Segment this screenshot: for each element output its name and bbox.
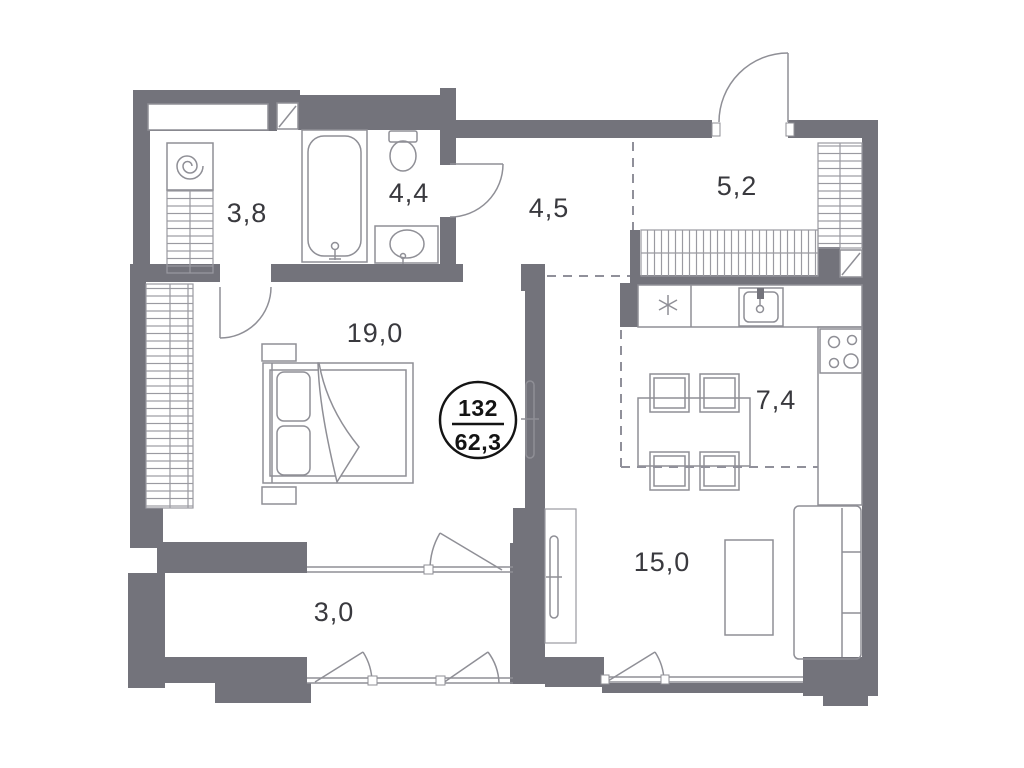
nightstand-symbol [262,344,296,361]
floor-plan-canvas: 3,8 4,4 4,5 5,2 19,0 7,4 15,0 3,0 132 62… [0,0,1024,768]
sliding-door-panel [545,509,576,643]
apartment-badge: 132 62,3 [440,382,516,458]
door-jamb [786,123,794,136]
radiator-symbol [146,284,193,508]
wall-niche-cabinet [148,104,268,130]
washing-machine-symbol [167,143,213,190]
room-label-living-room: 15,0 [634,547,691,577]
wardrobe-symbol [641,230,818,276]
entrance-door-swing [719,53,788,122]
door-jamb [712,123,720,136]
apartment-total-area: 62,3 [455,429,502,455]
stove-symbol [820,329,862,373]
kitchen-counter [638,285,862,505]
room-label-hallway: 4,5 [529,193,570,223]
bathtub-symbol [302,130,367,262]
dining-table-symbol [638,374,750,490]
bathroom-door-swing [450,164,503,217]
toilet-symbol [389,131,417,171]
room-label-bedroom: 19,0 [347,318,404,348]
wardrobe-room-door-swing [220,287,271,338]
radiator-symbol [818,143,862,248]
balcony-door-swing [430,533,502,570]
vent-shaft-icon [840,250,862,277]
living-room-window [601,675,803,684]
apartment-number: 132 [458,395,498,421]
drying-rack-symbol [167,190,213,273]
nightstand-symbol [262,487,296,504]
bathroom-sink-symbol [375,226,438,264]
sofa-symbol [794,506,861,659]
floor-plan-drawing: 3,8 4,4 4,5 5,2 19,0 7,4 15,0 3,0 132 62… [0,0,1024,768]
room-label-balcony: 3,0 [314,597,355,627]
room-label-wardrobe-room: 3,8 [227,198,268,228]
vent-shaft-icon [277,103,298,129]
kitchen-sink-symbol [739,288,783,326]
room-label-entry: 5,2 [717,171,758,201]
coffee-table-symbol [725,540,773,635]
bed-symbol [263,363,413,483]
hob-placeholder-icon [659,295,677,315]
room-label-bathroom: 4,4 [389,178,430,208]
room-label-kitchen: 7,4 [756,385,797,415]
